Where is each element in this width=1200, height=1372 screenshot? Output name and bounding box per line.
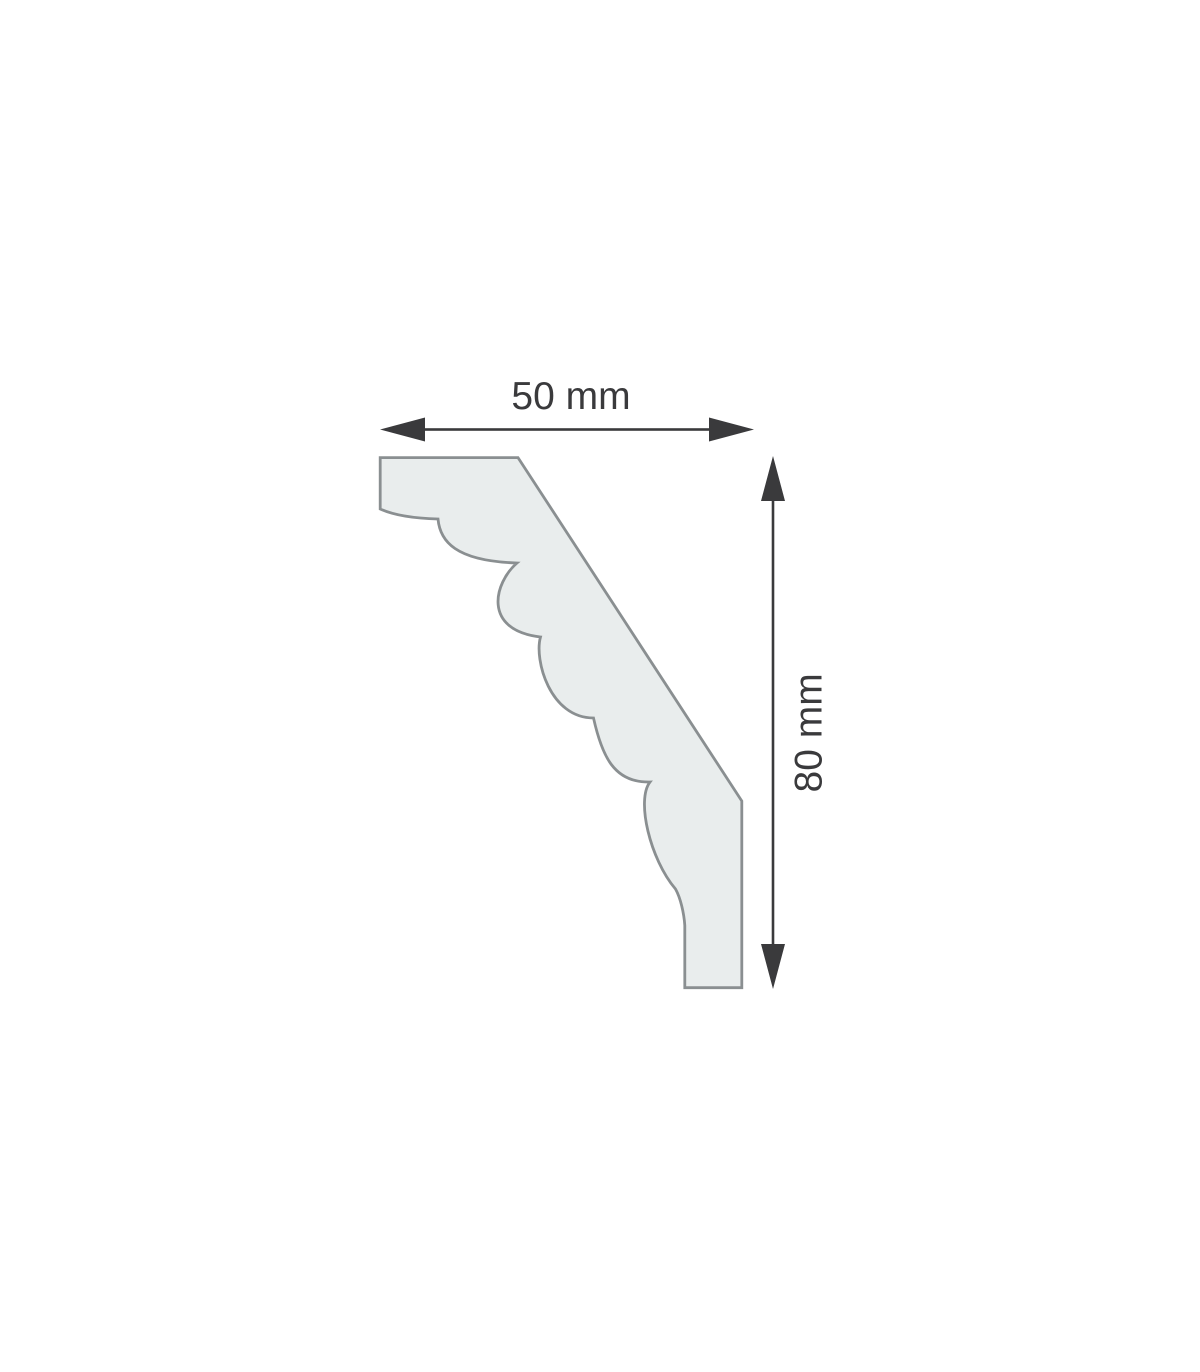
svg-text:50 mm: 50 mm [511,375,630,418]
svg-text:80 mm: 80 mm [788,673,831,792]
